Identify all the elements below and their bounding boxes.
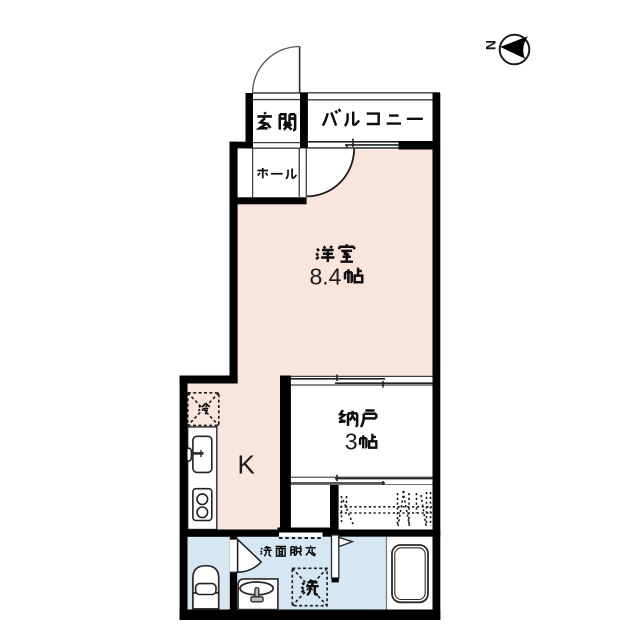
svg-text:N: N <box>483 40 499 50</box>
svg-text:K: K <box>238 450 256 480</box>
svg-text:8.4: 8.4 <box>310 263 342 289</box>
svg-text:3: 3 <box>345 428 358 454</box>
